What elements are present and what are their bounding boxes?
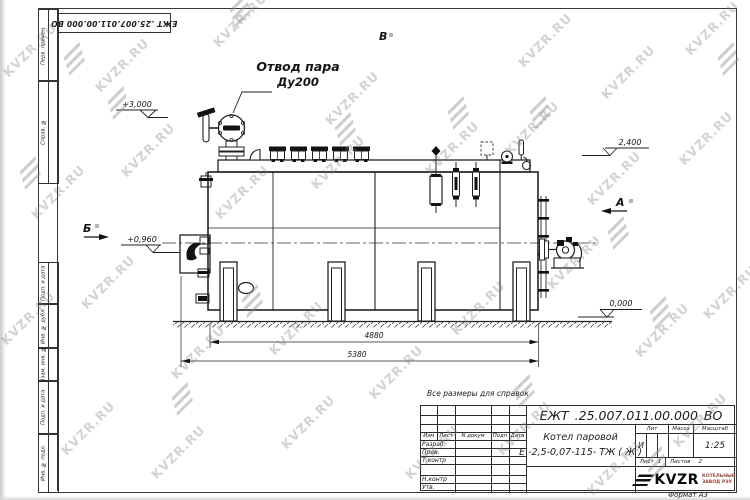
callout-leader-line [233,92,272,113]
svg-text:0,000: 0,000 [610,299,633,308]
view-marker-dot-icon [629,199,633,203]
level-gauges [430,146,480,213]
view-marker-dot-icon [389,33,393,37]
elevation-marks: +3,000 +0,960 2,400 0,000 [116,100,649,317]
svg-text:+3,000: +3,000 [122,100,152,109]
gauge-glass [453,162,460,207]
steam-outlet-callout: Отвод пара Ду200 [233,59,340,113]
gauge-glass [473,162,480,207]
elevation-mark: 0,000 [578,299,642,317]
svg-text:2,400: 2,400 [619,138,642,147]
sight-glass [239,283,254,294]
boiler-shell [208,160,538,310]
drawing-sheet: Перв. примен. Справ. № Подп. и дата Инв.… [0,0,750,500]
view-marker-left: Б [83,222,91,235]
callout-text-line2: Ду200 [276,75,319,89]
view-marker-right: А [615,196,625,209]
elevation-mark: 2,400 [582,138,649,156]
hatch [332,147,349,163]
support-leg [220,262,237,321]
hatch [353,147,370,163]
callout-text-line1: Отвод пара [256,59,339,74]
support-leg [328,262,345,321]
svg-text:+0,960: +0,960 [127,235,157,244]
elevation-mark: +3,000 [116,100,168,118]
support-leg [513,262,530,321]
water-column-gauge [430,146,442,213]
top-right-fittings [481,140,531,170]
steam-outlet-valve [197,107,245,160]
hatch [311,147,328,163]
view-arrow-right-icon [99,234,109,240]
ground-line [173,322,612,328]
hatch [290,147,307,163]
top-hatches [269,147,370,163]
view-arrow-left-icon [601,208,611,214]
support-leg [418,262,435,321]
boiler-side-view-drawing: 4880 5380 +3,000 +0,960 2,400 0,000 [0,0,750,500]
dimension-inner-value: 4880 [364,331,383,340]
view-markers: В Б А [83,30,633,240]
lever [519,140,524,155]
hatch [269,147,286,163]
valve-handwheel [203,114,209,142]
top-dome [250,150,260,161]
dimension-outer-value: 5380 [347,350,366,359]
view-marker-top: В [379,30,387,43]
view-marker-dot-icon [95,224,99,228]
elevation-mark: +0,960 [121,235,180,253]
